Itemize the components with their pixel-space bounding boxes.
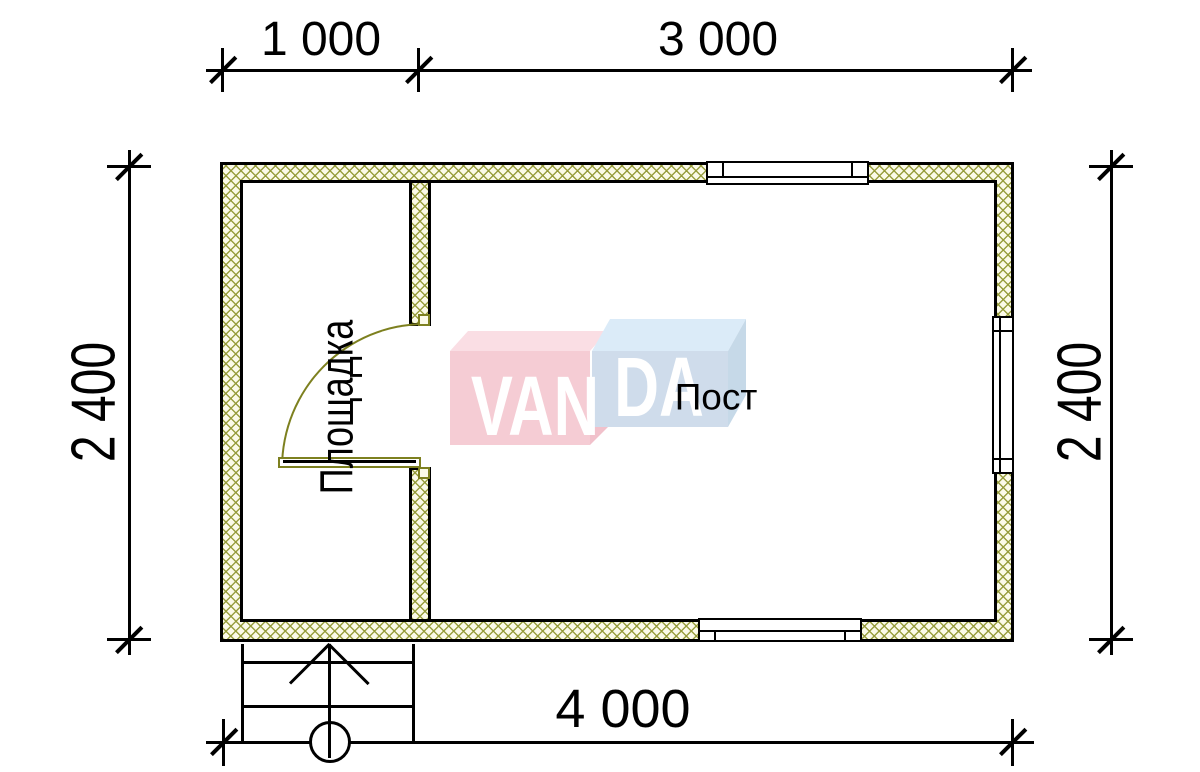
dim-label-right-2400: 2 400 — [1050, 342, 1112, 462]
window-top — [706, 161, 869, 185]
dim-label-left-2400: 2 400 — [64, 342, 126, 462]
door-jamb-block-bottom — [418, 467, 430, 479]
window-jamb — [994, 458, 1012, 460]
window-glass-line — [999, 318, 1001, 472]
stairs-direction-arrow — [328, 643, 370, 685]
room-label-vestibule: Площадка — [314, 320, 361, 495]
dim-label-4000: 4 000 — [555, 682, 690, 736]
dim-label-1000: 1 000 — [261, 16, 381, 64]
dim-line-top — [206, 69, 1032, 72]
room-label-main: Пост — [675, 379, 758, 416]
partition-wall-upper — [409, 180, 431, 326]
window-jamb — [714, 630, 716, 640]
window-jamb — [851, 163, 853, 176]
floor-plan: VAN DA Площадка Пост 1 000 3 000 2 — [0, 0, 1200, 772]
door-jamb-block-top — [418, 314, 430, 326]
window-bottom — [698, 618, 862, 642]
logo-pink-box-top — [450, 331, 608, 351]
stairs-center-line — [328, 644, 331, 758]
partition-wall-lower — [409, 467, 431, 622]
window-jamb — [722, 163, 724, 176]
window-jamb — [994, 330, 1012, 332]
stairs-right-edge — [412, 644, 415, 743]
window-right — [992, 316, 1014, 474]
window-glass-line — [708, 176, 867, 178]
window-glass-line — [700, 630, 860, 632]
stairs-left-edge — [241, 644, 244, 743]
dim-label-3000: 3 000 — [658, 16, 778, 64]
logo-text-van: VAN — [471, 364, 599, 448]
window-jamb — [844, 630, 846, 640]
